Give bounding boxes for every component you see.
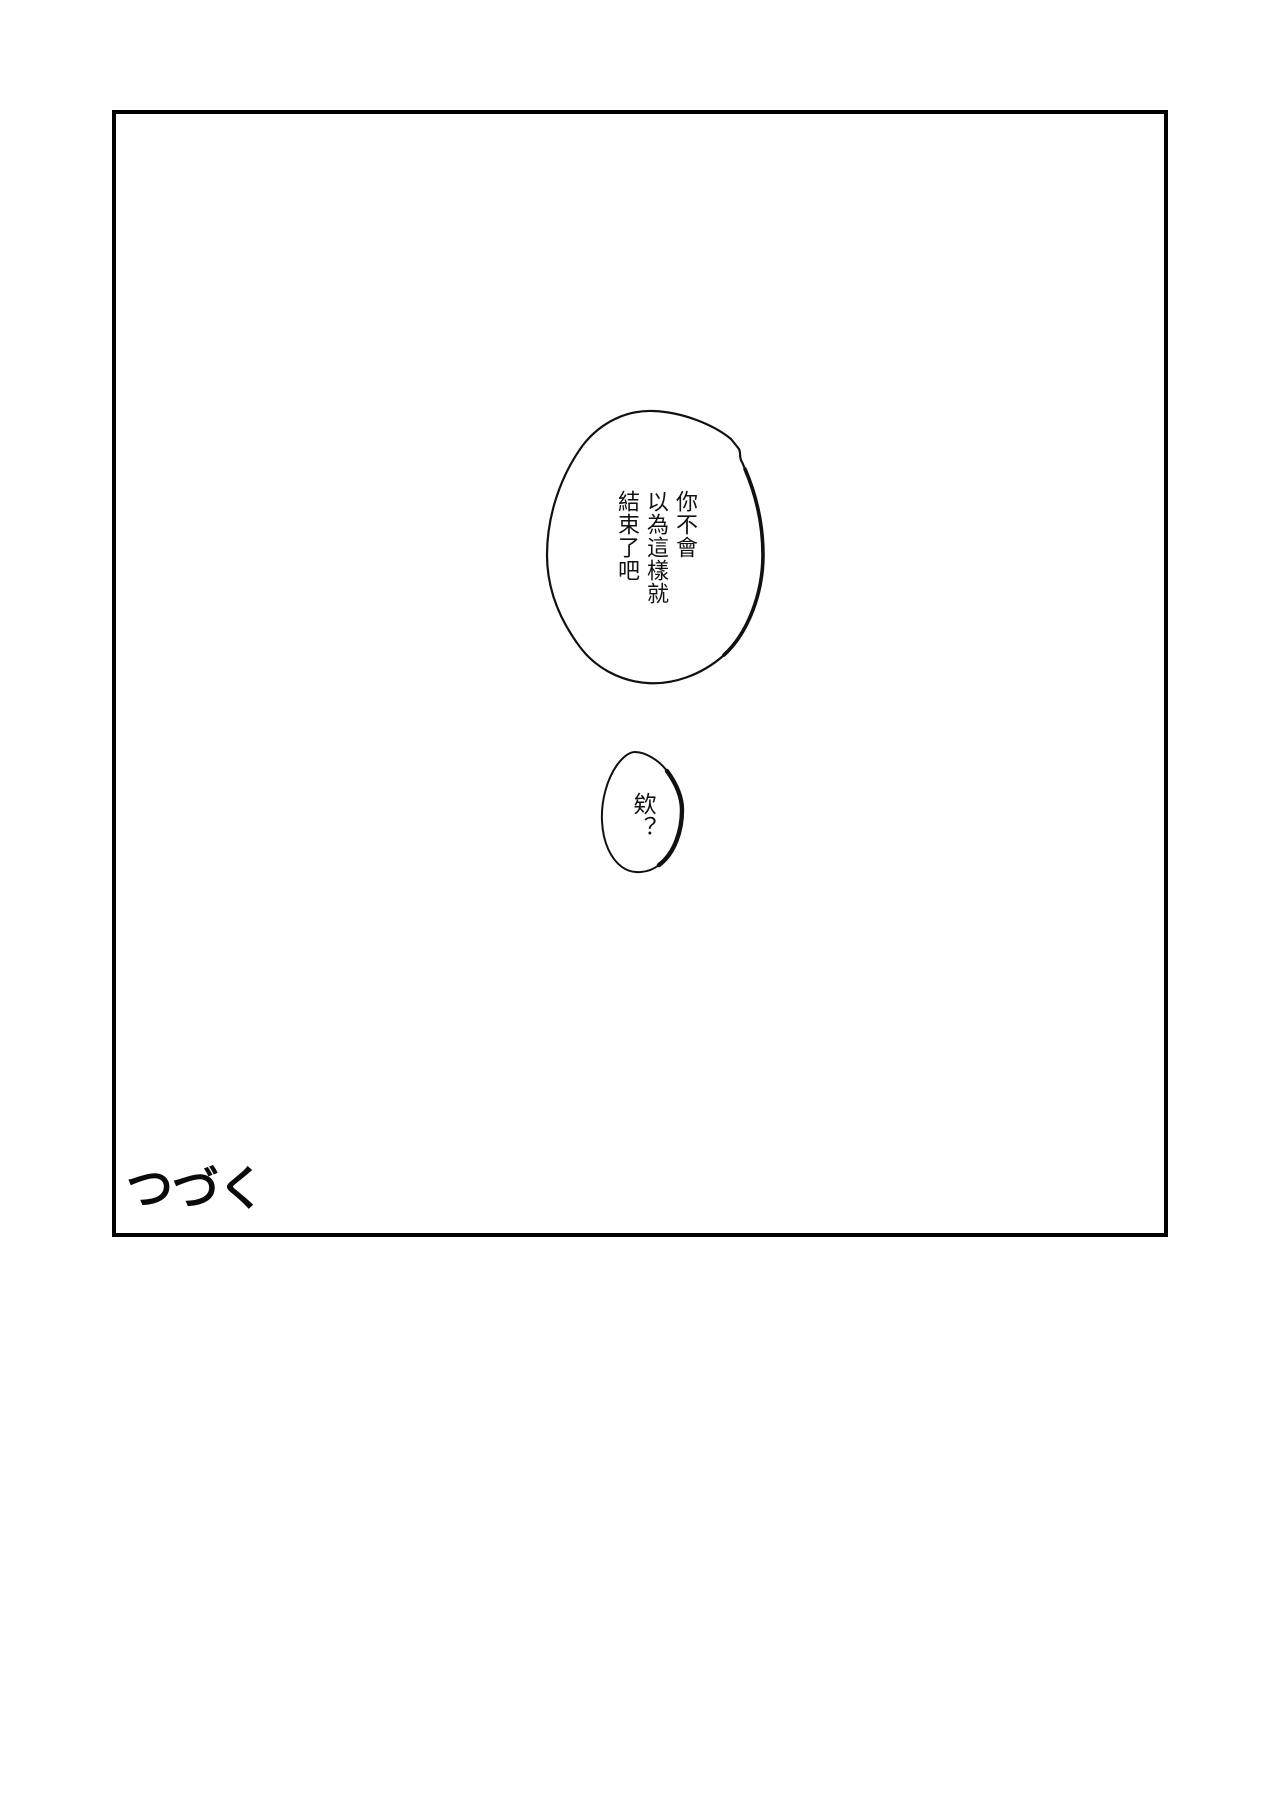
small-speech-bubble-text: 欸？: [629, 792, 655, 847]
to-be-continued-label: つづく: [126, 1164, 264, 1216]
large-bubble-line-2: 以為這樣就: [641, 490, 670, 616]
small-bubble-line-1: 欸？: [629, 792, 655, 847]
large-bubble-line-1: 你不會: [670, 490, 699, 616]
large-bubble-line-3: 結束了吧: [612, 490, 641, 616]
large-speech-bubble-text: 你不會 以為這樣就 結束了吧: [612, 490, 699, 616]
manga-page: { "page": { "background_color": "#ffffff…: [0, 0, 1280, 1808]
manga-panel-border: [112, 110, 1168, 1237]
